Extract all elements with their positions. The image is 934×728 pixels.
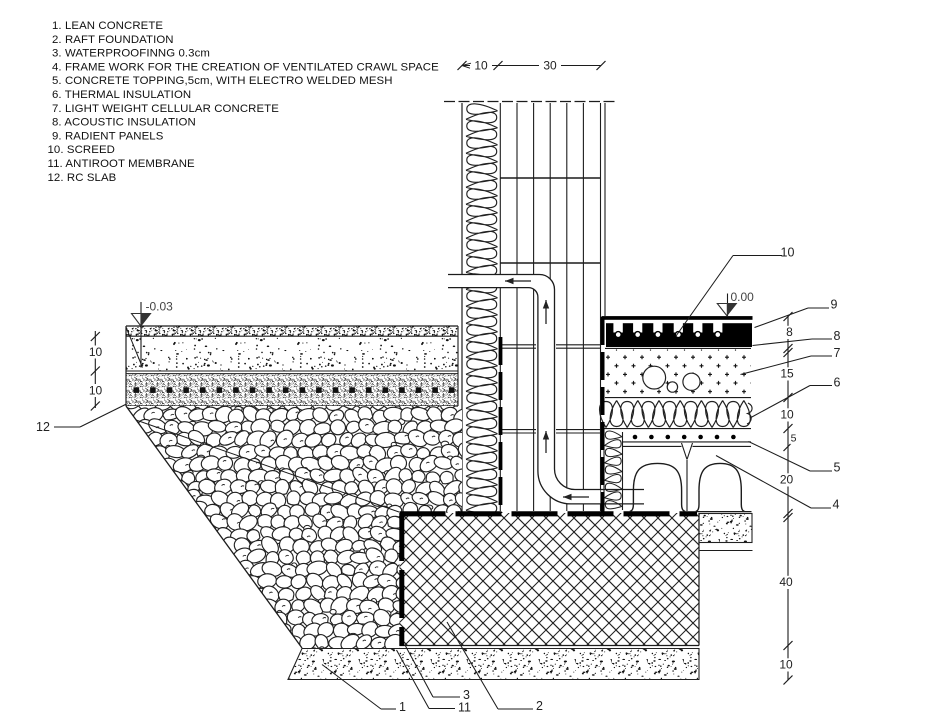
svg-text:1. LEAN CONCRETE: 1. LEAN CONCRETE bbox=[52, 20, 163, 32]
svg-text:0.00: 0.00 bbox=[731, 290, 755, 304]
svg-text:5. CONCRETE TOPPING,5cm, WITH: 5. CONCRETE TOPPING,5cm, WITH ELECTRO WE… bbox=[52, 75, 393, 87]
svg-text:3. WATERPROOFINNG 0.3cm: 3. WATERPROOFINNG 0.3cm bbox=[52, 48, 210, 60]
svg-text:40: 40 bbox=[779, 575, 793, 589]
svg-text:12: 12 bbox=[36, 420, 50, 434]
svg-text:15: 15 bbox=[780, 367, 794, 381]
svg-text:9. RADIENT PANELS: 9. RADIENT PANELS bbox=[52, 130, 164, 142]
svg-text:2: 2 bbox=[536, 699, 543, 713]
svg-text:5: 5 bbox=[791, 433, 797, 445]
svg-text:9: 9 bbox=[831, 298, 838, 312]
svg-text:8: 8 bbox=[786, 325, 793, 339]
svg-text:4: 4 bbox=[833, 498, 840, 512]
svg-text:10: 10 bbox=[779, 658, 793, 672]
svg-text:8: 8 bbox=[834, 329, 841, 343]
svg-text:11: 11 bbox=[458, 701, 471, 715]
svg-text:10: 10 bbox=[89, 345, 103, 359]
svg-text:4. FRAME WORK FOR THE CREATION: 4. FRAME WORK FOR THE CREATION OF VENTIL… bbox=[52, 61, 439, 73]
svg-text:6: 6 bbox=[834, 376, 841, 390]
svg-text:1: 1 bbox=[399, 700, 406, 714]
svg-text:7: 7 bbox=[834, 346, 841, 360]
svg-text:7. LIGHT WEIGHT CELLULAR CONCR: 7. LIGHT WEIGHT CELLULAR CONCRETE bbox=[52, 103, 279, 115]
svg-text:10: 10 bbox=[474, 59, 488, 73]
svg-text:6. THERMAL INSULATION: 6. THERMAL INSULATION bbox=[52, 89, 191, 101]
svg-text:12. RC SLAB: 12. RC SLAB bbox=[48, 172, 117, 184]
svg-text:10: 10 bbox=[89, 384, 103, 398]
svg-text:5: 5 bbox=[834, 461, 841, 475]
svg-text:2. RAFT FOUNDATION: 2. RAFT FOUNDATION bbox=[52, 34, 174, 46]
svg-text:10: 10 bbox=[781, 246, 795, 260]
svg-text:-0.03: -0.03 bbox=[146, 300, 174, 314]
svg-text:20: 20 bbox=[780, 473, 794, 487]
svg-text:10. SCREED: 10. SCREED bbox=[48, 144, 115, 156]
svg-text:10: 10 bbox=[780, 408, 794, 422]
svg-text:11. ANTIROOT MEMBRANE: 11. ANTIROOT MEMBRANE bbox=[48, 158, 196, 170]
svg-text:30: 30 bbox=[543, 59, 557, 73]
svg-text:8. ACOUSTIC INSULATION: 8. ACOUSTIC INSULATION bbox=[52, 117, 196, 129]
